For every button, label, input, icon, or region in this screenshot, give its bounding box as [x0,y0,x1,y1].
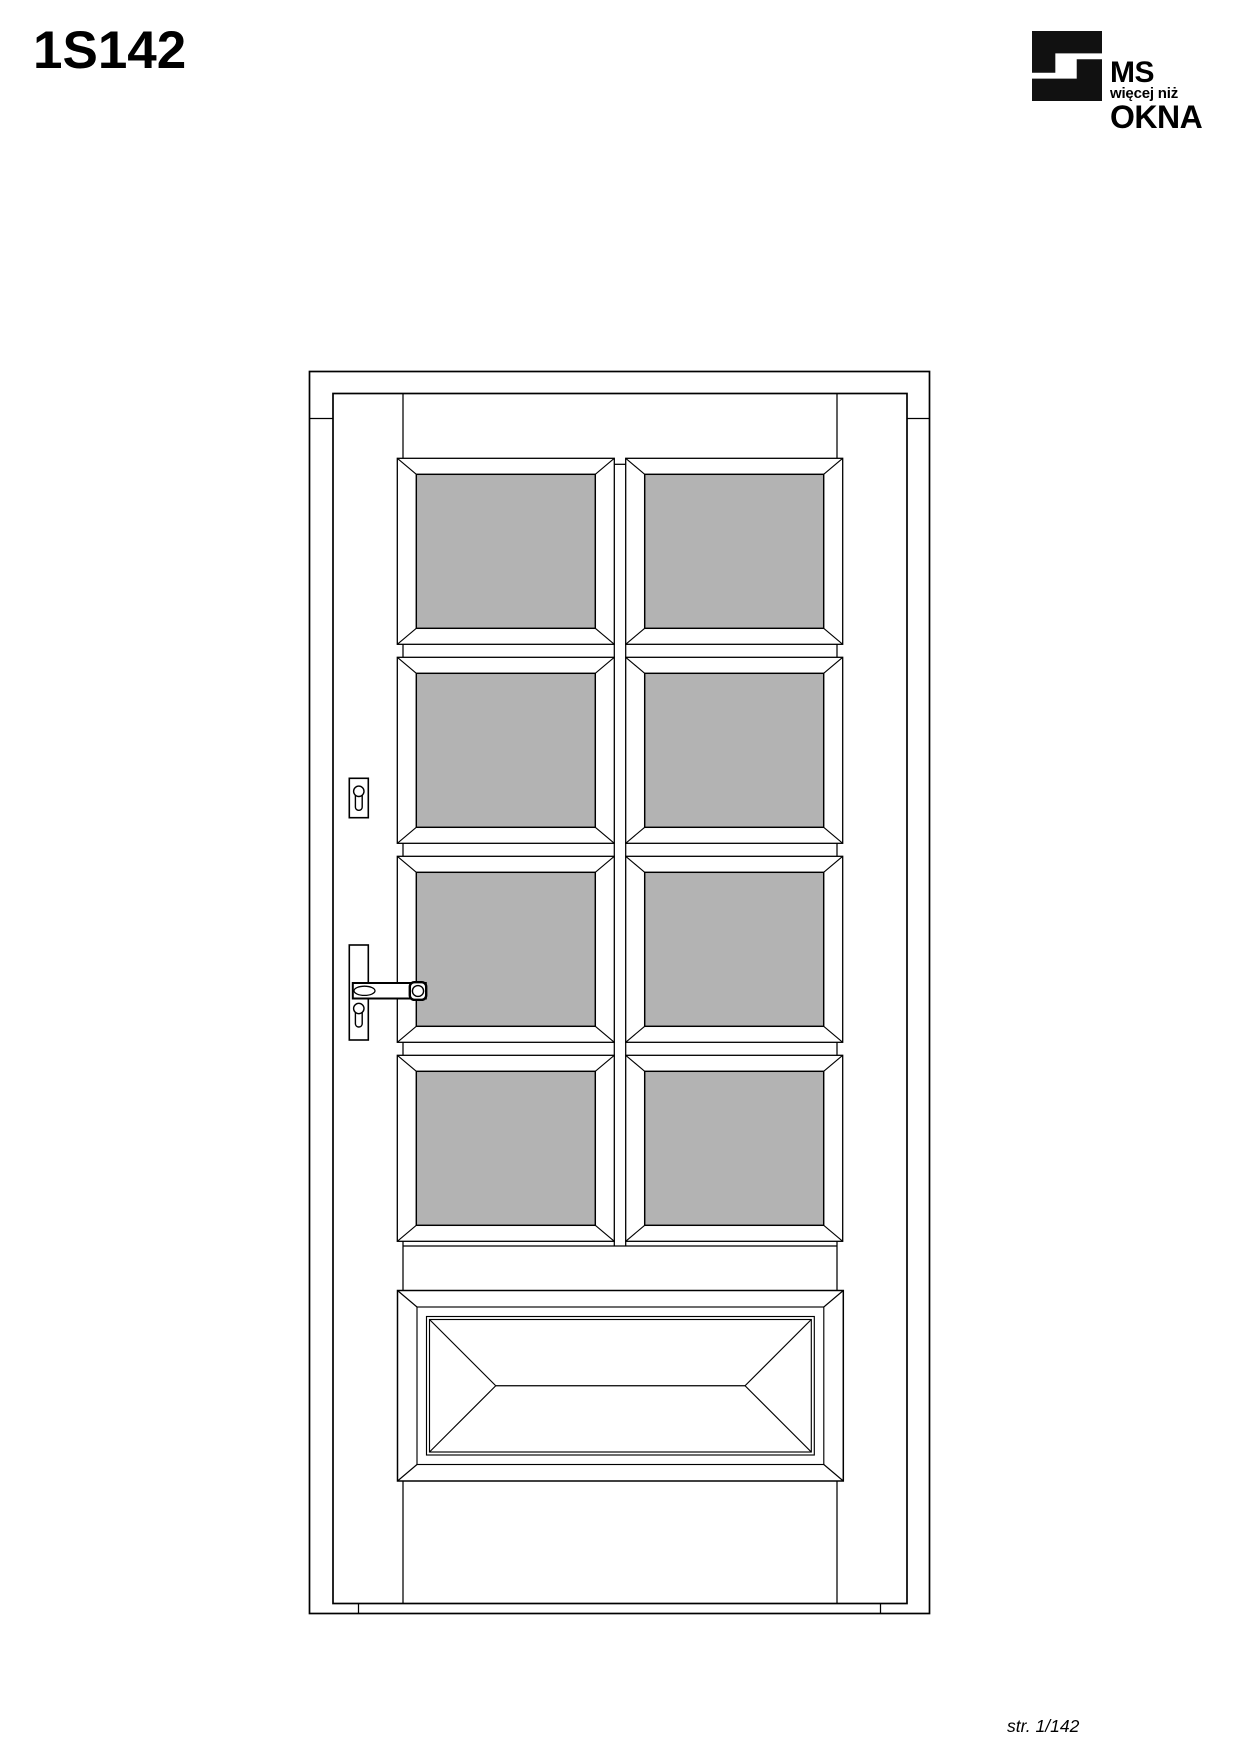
glass-panel-1 [397,458,614,644]
glass-panel-3 [397,657,614,843]
bottom-panel [398,1291,844,1482]
door-technical-drawing [0,0,1240,1755]
glass-panel-2 [626,458,843,644]
catalog-page: 1S142 MS więcej niż OKNA str. 1/142 [0,0,1240,1755]
cylinder-escutcheon [349,778,368,817]
glass-panel-6 [626,856,843,1042]
glass-panel-4 [626,657,843,843]
glass-panel-5 [397,856,614,1042]
glass-panel-7 [397,1055,614,1241]
page-number: str. 1/142 [1007,1716,1079,1737]
door-handle [353,982,426,1000]
glass-panel-8 [626,1055,843,1241]
